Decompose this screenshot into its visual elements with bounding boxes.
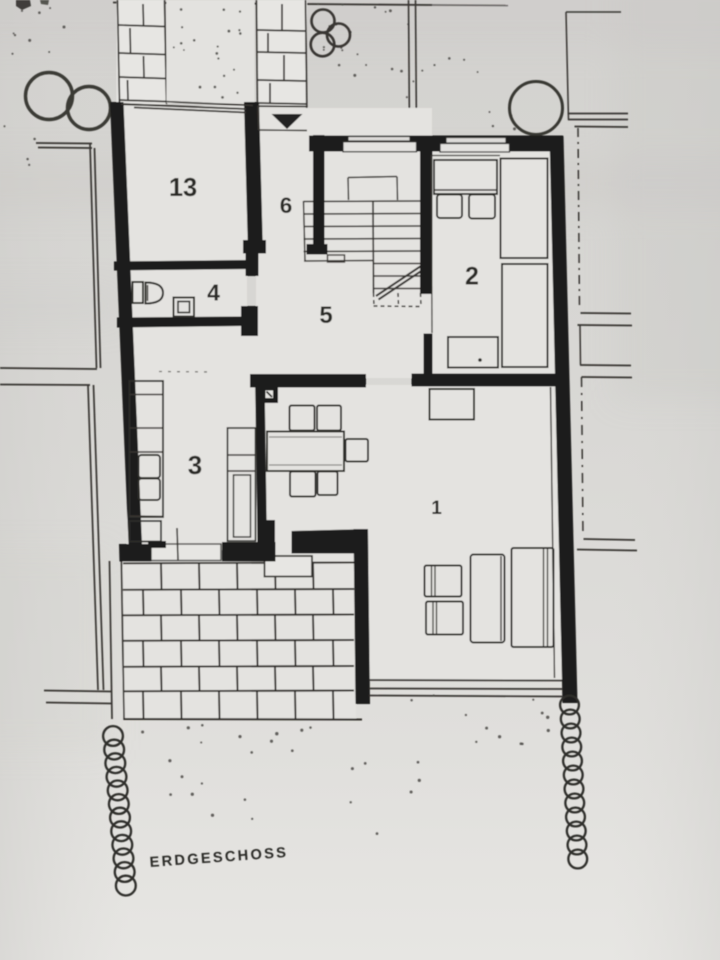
svg-text:4: 4 bbox=[207, 280, 220, 306]
svg-text:13: 13 bbox=[169, 174, 197, 202]
svg-text:1: 1 bbox=[431, 498, 442, 519]
svg-text:6: 6 bbox=[280, 193, 293, 218]
svg-text:2: 2 bbox=[465, 263, 479, 291]
svg-text:5: 5 bbox=[319, 302, 332, 329]
svg-text:3: 3 bbox=[188, 450, 202, 480]
